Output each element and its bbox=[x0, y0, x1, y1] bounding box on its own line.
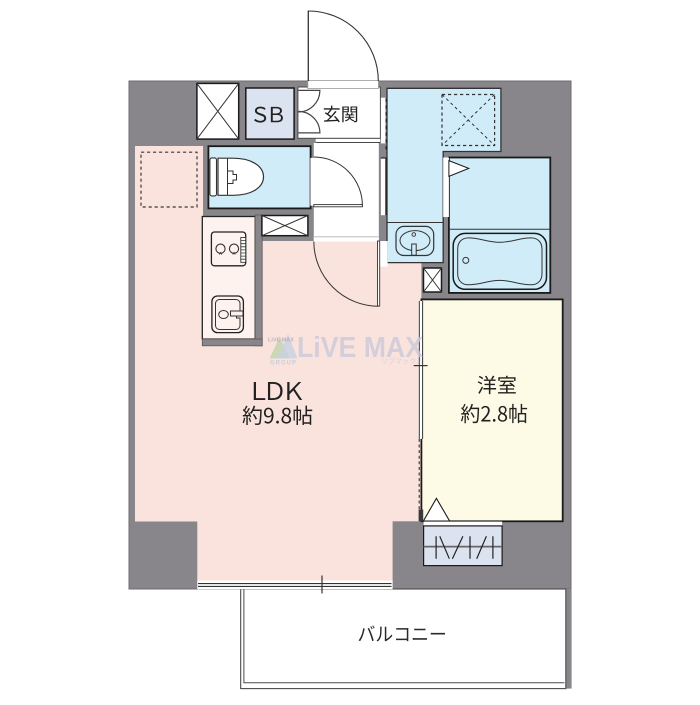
svg-text:GROUP: GROUP bbox=[270, 361, 297, 367]
svg-text:LiVE MAX: LiVE MAX bbox=[268, 338, 294, 344]
svg-text:LiVE MAX: LiVE MAX bbox=[297, 332, 424, 364]
